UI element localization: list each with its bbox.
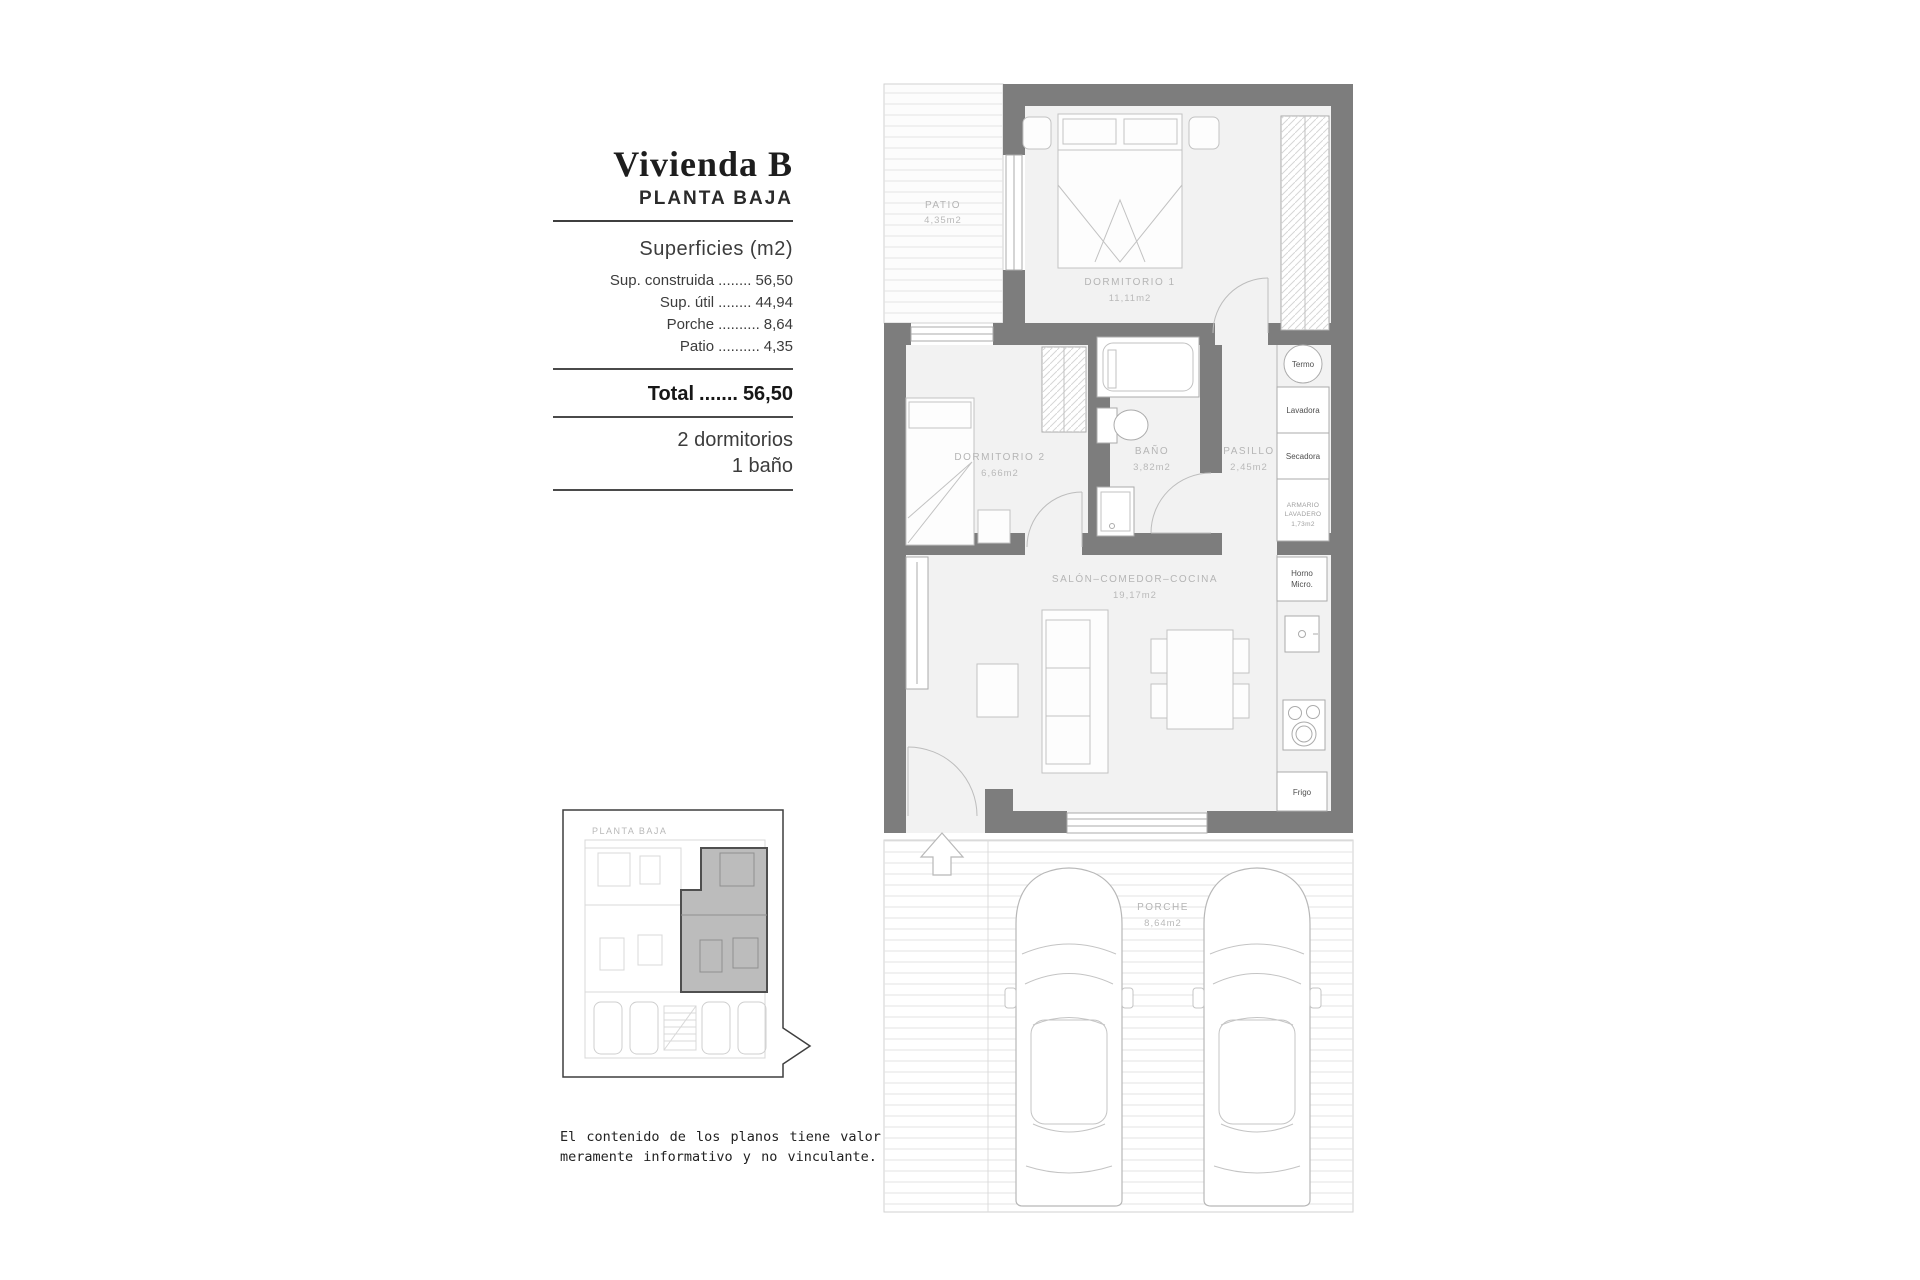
dots: .......: [699, 383, 738, 405]
floor-subtitle: PLANTA BAJA: [553, 188, 793, 210]
keyplan-inset: PLANTA BAJA: [550, 795, 830, 1090]
nightstand-right: [1189, 117, 1219, 149]
divider: [553, 368, 793, 370]
nightstand: [978, 510, 1010, 543]
dots: ........: [718, 272, 751, 289]
porche-area: PORCHE 8,64m2: [884, 833, 1353, 1212]
toilet: [1097, 408, 1148, 443]
surface-label: Porche: [667, 316, 715, 333]
feature-bedrooms: 2 dormitorios: [553, 427, 793, 453]
floorplan-page: Vivienda B PLANTA BAJA Superficies (m2) …: [0, 0, 1920, 1280]
window-salon-bottom: [1067, 813, 1207, 833]
surface-label: Sup. construida: [610, 272, 714, 289]
horno-label-1: Horno: [1291, 569, 1313, 578]
surface-value: 8,64: [764, 316, 793, 333]
window-dorm1-patio: [1006, 155, 1022, 270]
disclaimer-line1: El contenido de los planos tiene valor: [560, 1128, 890, 1148]
armario-label-1: ARMARIO: [1287, 502, 1319, 509]
total-value: 56,50: [743, 383, 793, 405]
surface-value: 44,94: [755, 294, 793, 311]
surfaces-heading: Superficies (m2): [553, 238, 793, 261]
total-row: Total.......56,50: [553, 383, 793, 406]
termo-label: Termo: [1292, 360, 1315, 369]
window-salon-left: [906, 557, 928, 689]
secadora-label: Secadora: [1286, 452, 1321, 461]
patio-area-label: 4,35m2: [924, 215, 962, 226]
porche-label: PORCHE: [1137, 902, 1189, 913]
pasillo-label: PASILLO: [1223, 446, 1274, 457]
dormitorio1-label: DORMITORIO 1: [1084, 277, 1175, 288]
double-bed: [1058, 114, 1182, 268]
bathtub: [1097, 337, 1199, 397]
feature-bathrooms: 1 baño: [553, 453, 793, 479]
salon-label: SALÓN–COMEDOR–COCINA: [1052, 572, 1218, 585]
floor-plan: PATIO 4,35m2 PORCHE 8,64m2: [880, 60, 1360, 1220]
nightstand-left: [1023, 117, 1051, 149]
divider: [553, 220, 793, 222]
surface-row-patio: Patio..........4,35: [553, 336, 793, 358]
surface-value: 56,50: [755, 272, 793, 289]
coffee-table: [977, 664, 1018, 717]
disclaimer: El contenido de los planos tiene valor m…: [560, 1128, 890, 1167]
surface-row-porche: Porche..........8,64: [553, 314, 793, 336]
horno-micro: [1277, 557, 1327, 601]
features: 2 dormitorios 1 baño: [553, 427, 793, 479]
dormitorio2-label: DORMITORIO 2: [954, 452, 1045, 463]
disclaimer-line2: meramente informativo y no vinculante.: [560, 1148, 890, 1168]
sofa: [1042, 610, 1108, 773]
divider: [553, 489, 793, 491]
info-panel: Vivienda B PLANTA BAJA Superficies (m2) …: [553, 146, 793, 491]
armario-area-label: 1,73m2: [1291, 521, 1315, 528]
total-label: Total: [648, 383, 694, 405]
surface-value: 4,35: [764, 338, 793, 355]
armario-label-2: LAVADERO: [1285, 511, 1322, 518]
patio-area: PATIO 4,35m2: [884, 84, 1003, 323]
window-dorm2-patio: [911, 327, 993, 341]
dots: ..........: [718, 338, 760, 355]
inset-title: PLANTA BAJA: [592, 826, 667, 836]
frigo-label: Frigo: [1293, 788, 1312, 797]
hob: [1283, 700, 1325, 750]
surface-row-util: Sup. útil........44,94: [553, 292, 793, 314]
armario-lavadero: [1277, 479, 1329, 541]
dormitorio1-area-label: 11,11m2: [1109, 293, 1152, 304]
bano-area-label: 3,82m2: [1133, 462, 1171, 473]
porche-area-label: 8,64m2: [1144, 918, 1182, 929]
single-bed: [906, 398, 974, 545]
bano-label: BAÑO: [1135, 444, 1169, 457]
lavadora-label: Lavadora: [1286, 406, 1320, 415]
patio-label: PATIO: [925, 200, 961, 211]
car-left: [1005, 868, 1133, 1206]
pasillo-area-label: 2,45m2: [1230, 462, 1268, 473]
divider: [553, 416, 793, 418]
page-title: Vivienda B: [553, 146, 793, 184]
dots: ........: [718, 294, 751, 311]
dormitorio2-area-label: 6,66m2: [981, 468, 1019, 479]
surfaces-list: Sup. construida........56,50 Sup. útil..…: [553, 270, 793, 358]
surface-label: Sup. útil: [660, 294, 714, 311]
surface-label: Patio: [680, 338, 714, 355]
sink-vanity: [1097, 487, 1134, 536]
kitchen-sink: [1285, 616, 1319, 652]
car-right: [1193, 868, 1321, 1206]
horno-label-2: Micro.: [1291, 580, 1313, 589]
salon-area-label: 19,17m2: [1113, 590, 1157, 601]
surface-row-construida: Sup. construida........56,50: [553, 270, 793, 292]
dots: ..........: [718, 316, 760, 333]
